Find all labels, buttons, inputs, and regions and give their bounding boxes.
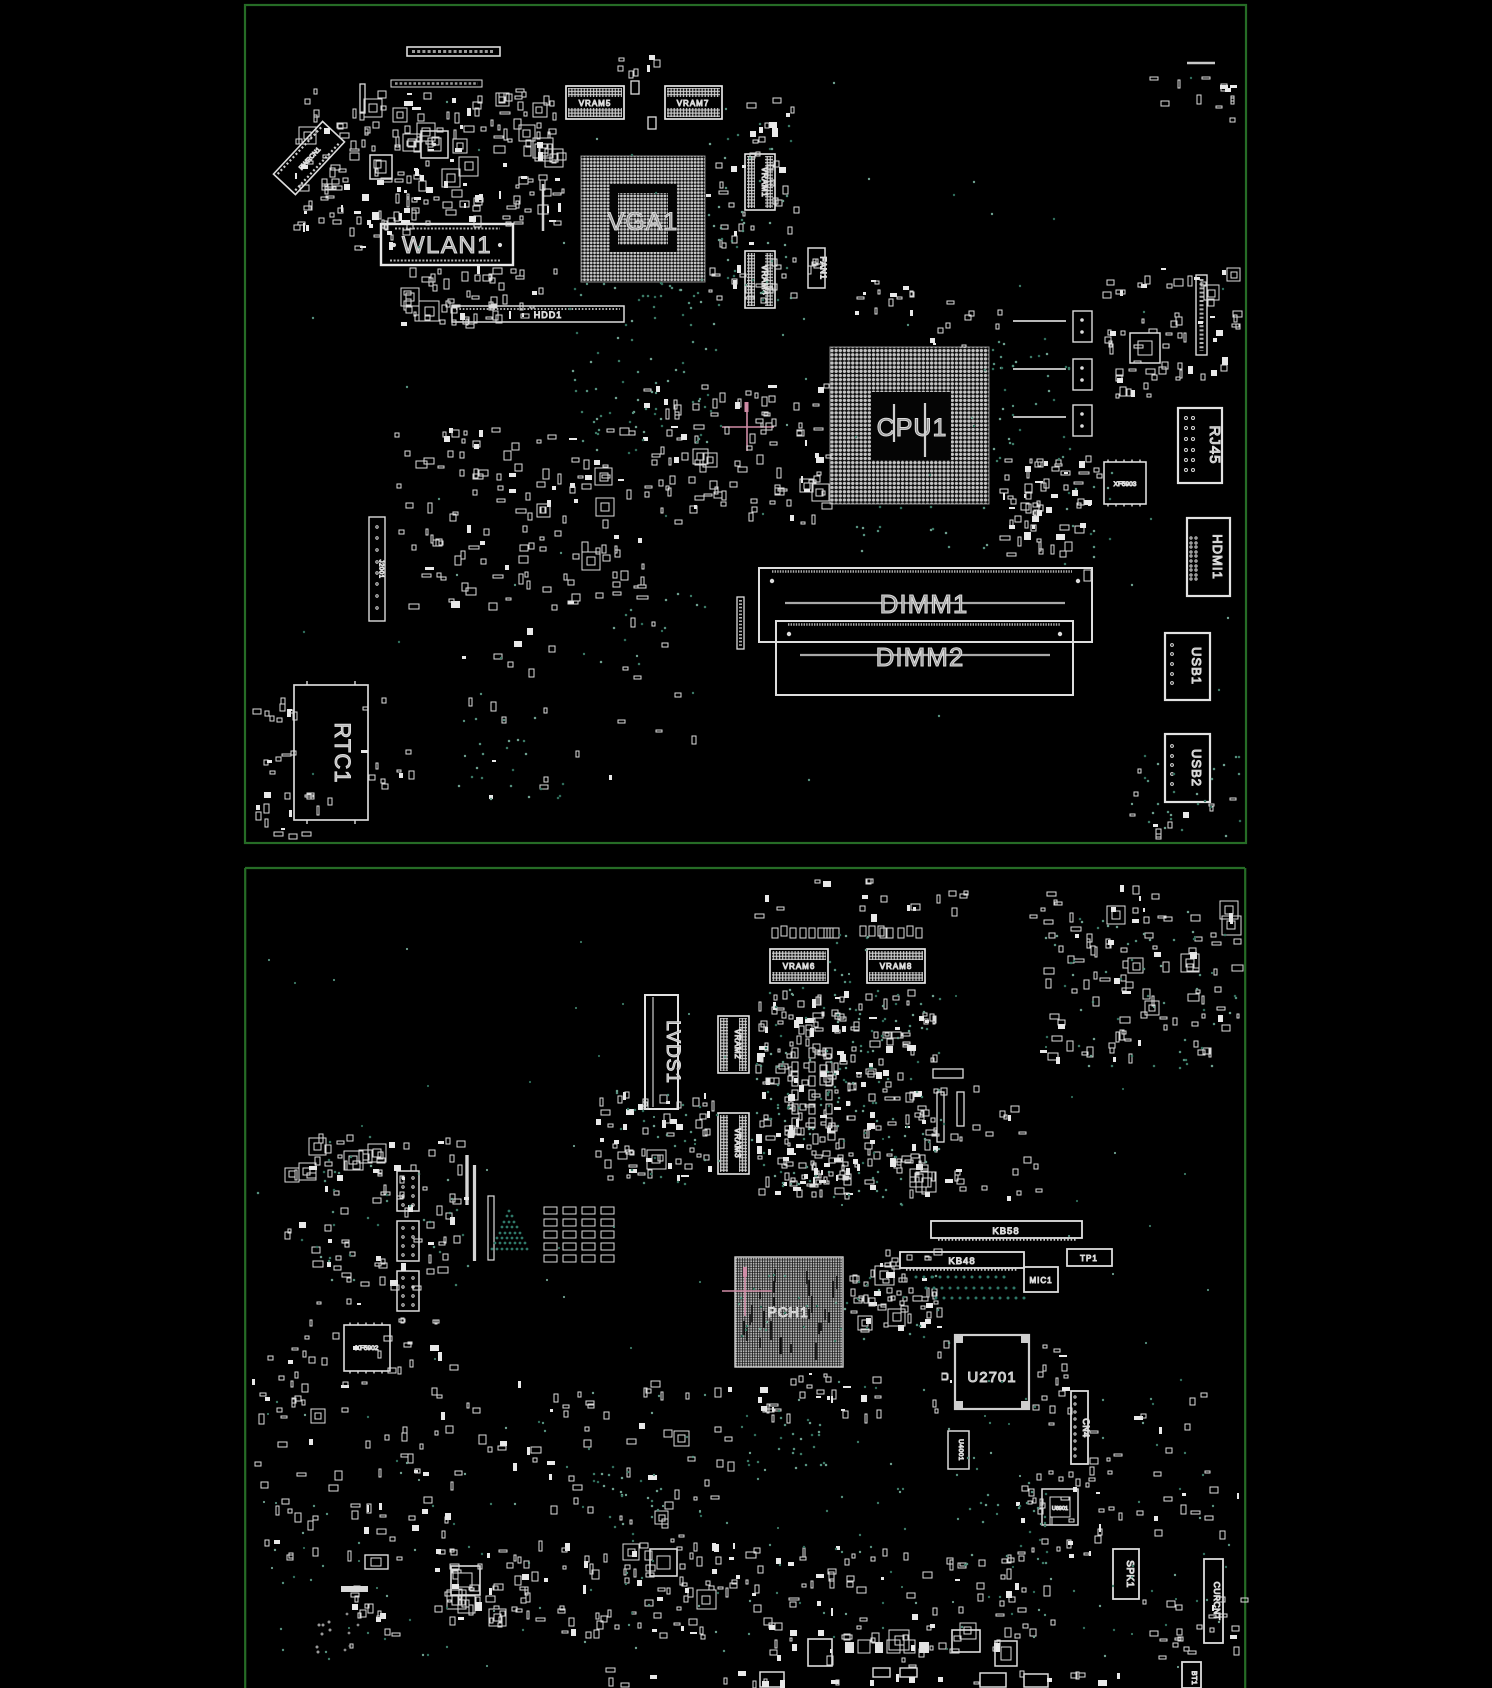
svg-text:USB2: USB2 (1189, 749, 1204, 787)
svg-text:XF5903: XF5903 (1114, 481, 1137, 488)
svg-text:VRAM4: VRAM4 (760, 265, 769, 295)
svg-text:USB1: USB1 (1189, 647, 1204, 685)
svg-text:VRAM6: VRAM6 (783, 962, 816, 971)
svg-text:U2701: U2701 (967, 1369, 1016, 1386)
svg-text:PCH1: PCH1 (767, 1304, 808, 1320)
svg-text:RJ45: RJ45 (1206, 425, 1223, 464)
svg-text:CN4: CN4 (1081, 1418, 1091, 1438)
svg-text:J2001: J2001 (378, 560, 384, 579)
svg-text:DIMM2: DIMM2 (876, 642, 965, 672)
svg-text:MIC1: MIC1 (1029, 1276, 1052, 1285)
svg-text:TP1: TP1 (1080, 1254, 1098, 1263)
svg-text:WLAN1: WLAN1 (402, 232, 492, 259)
svg-text:SPK1: SPK1 (1124, 1560, 1135, 1588)
svg-text:VRAM2: VRAM2 (733, 1029, 742, 1059)
svg-text:U4001: U4001 (957, 1439, 964, 1461)
svg-text:VRAM7: VRAM7 (677, 99, 710, 108)
svg-text:HDD1: HDD1 (534, 310, 563, 320)
svg-text:VRAM3: VRAM3 (733, 1128, 742, 1158)
svg-text:RTC1: RTC1 (330, 722, 355, 783)
svg-text:HDMI1: HDMI1 (1210, 534, 1225, 579)
svg-text:U8901: U8901 (1052, 1506, 1068, 1512)
svg-text:VRAM8: VRAM8 (880, 962, 913, 971)
svg-text:LVDS1: LVDS1 (662, 1020, 683, 1084)
svg-text:KB48: KB48 (948, 1256, 975, 1267)
svg-text:BT1: BT1 (1190, 1671, 1197, 1685)
svg-text:XF5902: XF5902 (356, 1345, 379, 1352)
svg-text:VGA1: VGA1 (608, 208, 679, 236)
svg-text:VRAM1: VRAM1 (760, 167, 769, 197)
svg-text:CPU1: CPU1 (877, 414, 948, 442)
svg-text:KB58: KB58 (992, 1226, 1019, 1237)
svg-text:DIMM1: DIMM1 (880, 589, 969, 619)
svg-text:VRAM5: VRAM5 (579, 99, 612, 108)
